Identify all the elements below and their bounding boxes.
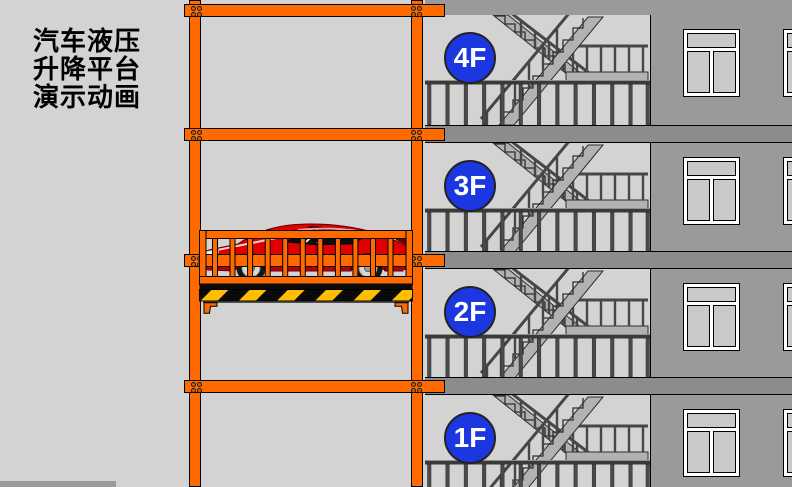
car-lift-demo-screen: 汽车液压 升降平台 演示动画 4F — [0, 0, 792, 487]
floor-badge-4f: 4F — [444, 32, 496, 84]
floor-label: 4F — [454, 42, 487, 74]
floor-section-1f: 1F — [425, 395, 792, 487]
title-line-2: 升降平台 — [33, 55, 141, 83]
window-pane — [687, 51, 710, 93]
outer-wall-4f — [650, 15, 792, 125]
window — [683, 157, 740, 225]
window-transom-pane — [787, 161, 792, 176]
title-line-3: 演示动画 — [33, 83, 141, 111]
window-transom-pane — [687, 161, 736, 176]
floor-section-3f: 3F — [425, 143, 792, 251]
window-transom-pane — [787, 33, 792, 48]
bolt-plate-icon — [411, 130, 422, 139]
crossbeam-2f — [184, 380, 445, 393]
ground-strip — [0, 481, 116, 487]
outer-wall-1f — [650, 395, 792, 487]
outer-wall-2f — [650, 269, 792, 377]
window-partial — [783, 409, 792, 477]
window-pane — [687, 179, 710, 221]
window-transom-pane — [687, 33, 736, 48]
window-partial — [783, 283, 792, 351]
floor-section-4f: 4F — [425, 15, 792, 125]
floor-label: 1F — [454, 422, 487, 454]
window-partial — [783, 29, 792, 97]
stairwell-3f: 3F — [425, 143, 650, 251]
floor-badge-2f: 2F — [444, 286, 496, 338]
guard-cage-railing — [200, 231, 413, 285]
window-pane — [787, 431, 792, 473]
window-transom-pane — [687, 287, 736, 302]
window-pane — [687, 431, 710, 473]
window-pane — [787, 179, 792, 221]
stairwell-2f: 2F — [425, 269, 650, 377]
bolt-plate-icon — [411, 6, 422, 15]
floor-slab — [425, 377, 792, 395]
title-line-1: 汽车液压 — [33, 27, 141, 55]
window-pane — [713, 51, 736, 93]
window-pane — [787, 305, 792, 347]
platform-foot-left — [204, 303, 217, 314]
window — [683, 409, 740, 477]
floor-label: 2F — [454, 296, 487, 328]
stairwell-4f: 4F — [425, 15, 650, 125]
window — [683, 283, 740, 351]
window-pane — [687, 305, 710, 347]
window-pane — [713, 179, 736, 221]
platform-deck — [200, 284, 413, 313]
lift-platform-assembly — [197, 228, 415, 316]
window-transom-pane — [787, 287, 792, 302]
crossbeam-4f — [184, 128, 445, 141]
floor-section-2f: 2F — [425, 269, 792, 377]
platform-foot-right — [395, 303, 408, 314]
bolt-plate-icon — [191, 382, 202, 391]
stairwell-1f: 1F — [425, 395, 650, 487]
outer-wall-3f — [650, 143, 792, 251]
window-pane — [713, 305, 736, 347]
floor-badge-3f: 3F — [444, 160, 496, 212]
bolt-plate-icon — [191, 6, 202, 15]
floor-badge-1f: 1F — [444, 412, 496, 464]
floor-slab — [425, 125, 792, 143]
bolt-plate-icon — [191, 130, 202, 139]
window — [683, 29, 740, 97]
window-pane — [787, 51, 792, 93]
window-partial — [783, 157, 792, 225]
title-block: 汽车液压 升降平台 演示动画 — [33, 27, 141, 111]
bolt-plate-icon — [411, 382, 422, 391]
ceiling-slab — [425, 0, 792, 16]
window-pane — [713, 431, 736, 473]
floor-slab — [425, 251, 792, 269]
crossbeam-roof — [184, 4, 445, 17]
hazard-stripe-band — [200, 290, 413, 302]
window-transom-pane — [787, 413, 792, 428]
window-transom-pane — [687, 413, 736, 428]
floor-label: 3F — [454, 170, 487, 202]
